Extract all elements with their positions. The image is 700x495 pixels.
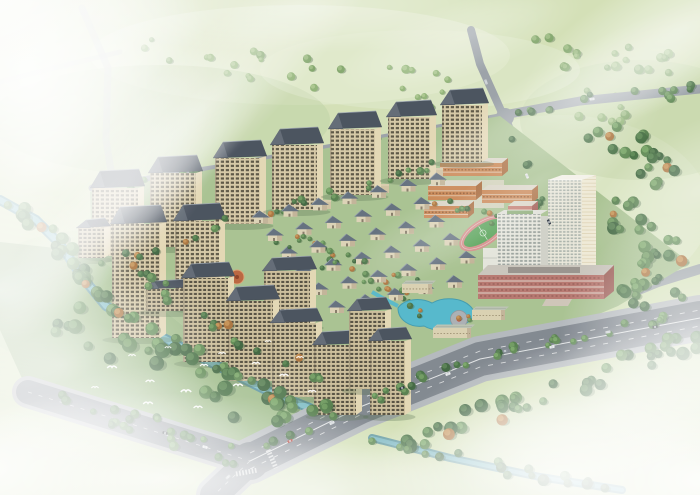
- aerial-site-rendering: [0, 0, 700, 495]
- rendering-canvas: [0, 0, 700, 495]
- fog-overlay: [0, 0, 700, 495]
